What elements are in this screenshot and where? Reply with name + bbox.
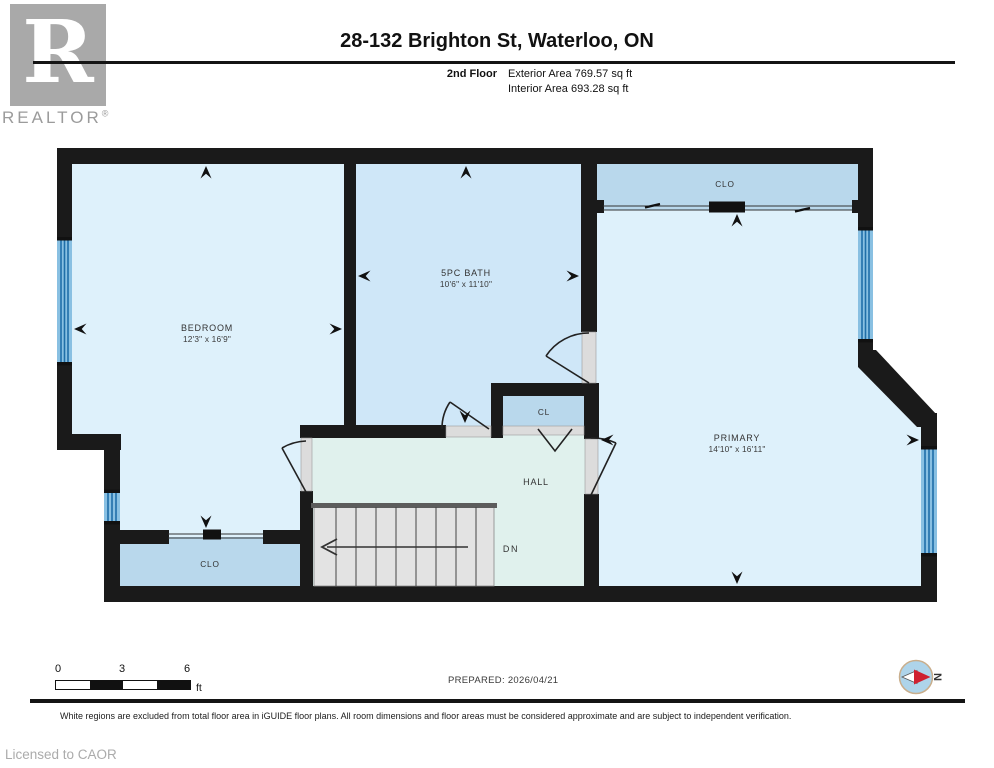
stairs — [311, 503, 497, 586]
scale-unit-label: ft — [196, 682, 202, 694]
license-text: Licensed to CAOR — [5, 747, 117, 762]
scale-tick-3: 3 — [115, 663, 129, 675]
window-primary-lower — [921, 446, 937, 557]
label-bath: 5PC BATH — [441, 268, 491, 278]
window-bedroom-lower — [104, 490, 120, 525]
label-bath-dims: 10'6" x 11'10" — [440, 279, 492, 289]
scale-bar — [55, 680, 191, 690]
scale-tick-6: 6 — [180, 663, 194, 675]
label-primary: PRIMARY — [714, 433, 760, 443]
prepared-date-text: PREPARED: 2026/04/21 — [448, 675, 558, 686]
label-stairs-dn: DN — [503, 544, 519, 554]
threshold-bedroom-door — [301, 438, 312, 491]
label-closet-bedroom: CLO — [200, 559, 219, 569]
scale-segment — [157, 681, 191, 689]
compass-n-label: N — [931, 673, 943, 681]
label-closet-hall: CL — [538, 407, 550, 417]
scale-segment — [123, 681, 157, 689]
window-bedroom-left — [57, 237, 72, 366]
footer-divider-line — [30, 699, 965, 703]
threshold-bath-door — [446, 426, 491, 437]
label-primary-dims: 14'10" x 16'11" — [708, 444, 765, 454]
compass-icon: N — [896, 657, 948, 699]
scale-segment — [56, 681, 90, 689]
disclaimer-text: White regions are excluded from total fl… — [60, 711, 974, 721]
label-hall: HALL — [523, 477, 549, 487]
scale-tick-0: 0 — [51, 663, 65, 675]
floor-plan: BEDROOM 12'3" x 16'9" 5PC BATH 10'6" x 1… — [0, 0, 994, 768]
label-closet-top-right: CLO — [715, 179, 734, 189]
stair-rail — [311, 503, 497, 508]
scale-segment — [90, 681, 124, 689]
label-bedroom-dims: 12'3" x 16'9" — [183, 334, 231, 344]
window-primary-upper — [858, 227, 873, 343]
room-primary-area — [596, 210, 930, 594]
room-fills — [64, 155, 930, 594]
threshold-bath-primary-door — [582, 332, 596, 383]
label-bedroom: BEDROOM — [181, 323, 233, 333]
